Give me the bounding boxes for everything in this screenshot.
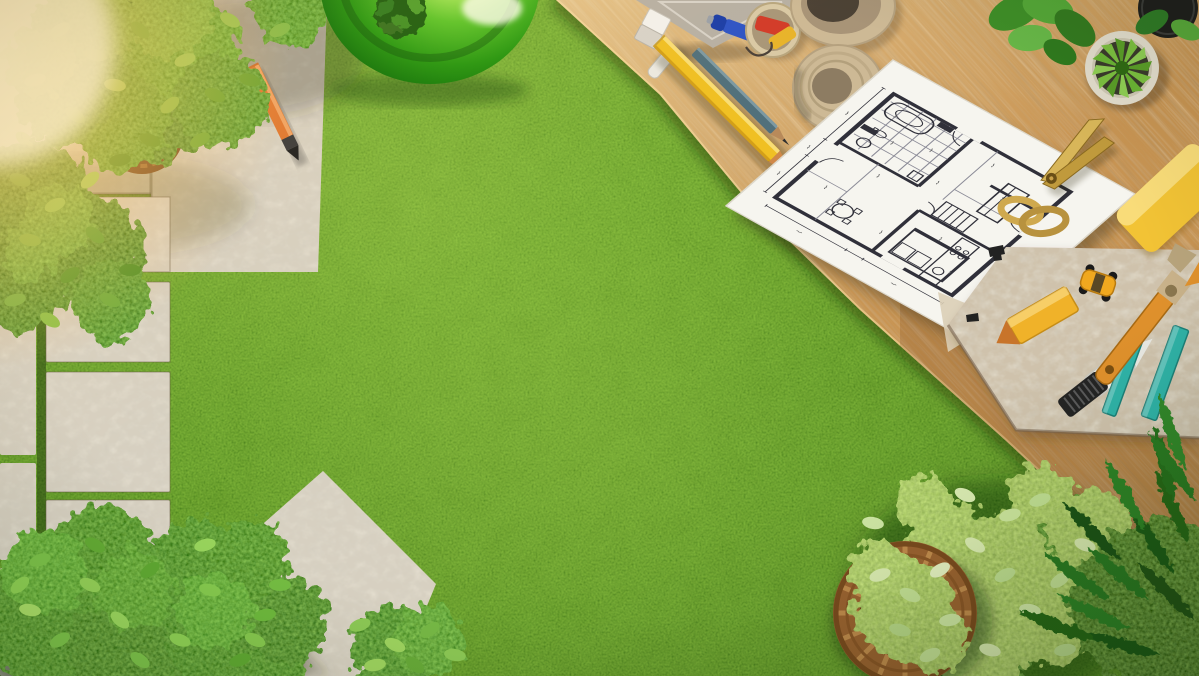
garden-photo xyxy=(0,0,1199,676)
vignette xyxy=(0,0,1199,676)
garden-photo-stage: Garden design flat lay xyxy=(0,0,1199,676)
